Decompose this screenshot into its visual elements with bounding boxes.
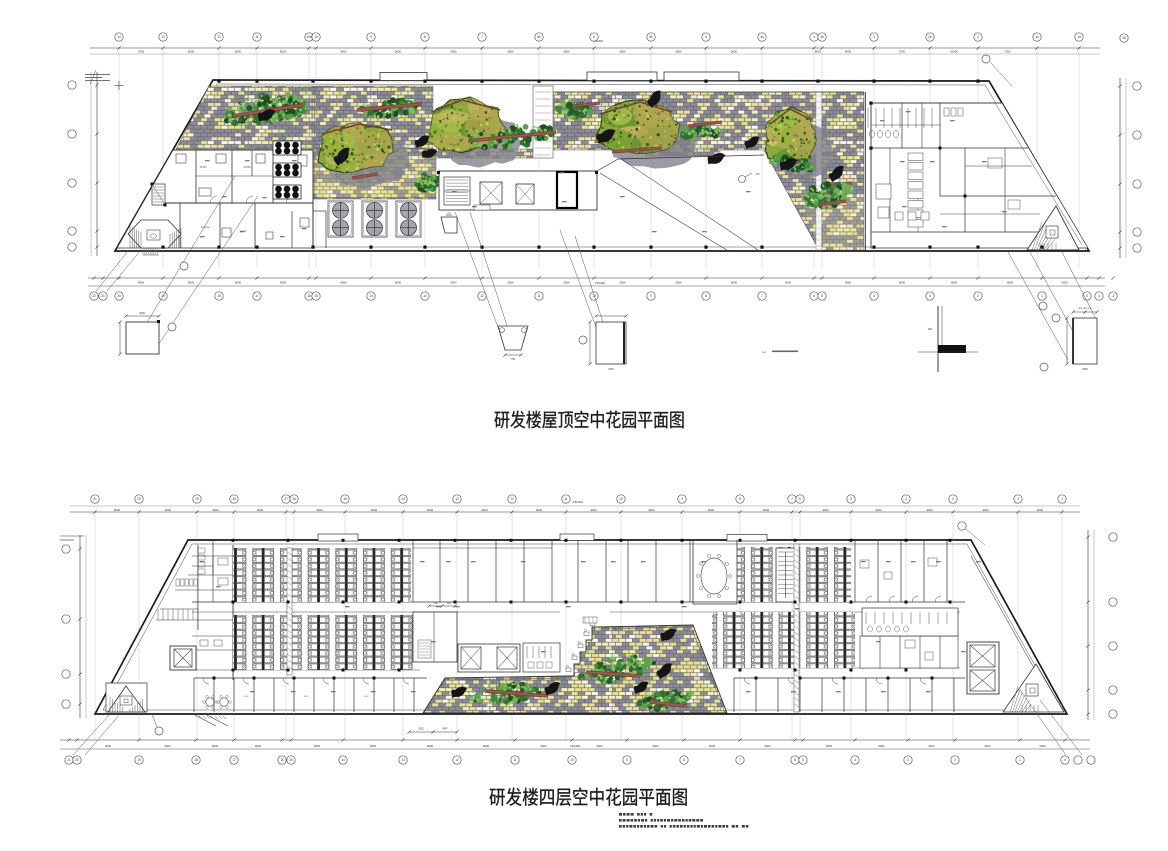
svg-text:18: 18	[232, 497, 236, 501]
svg-text:11: 11	[564, 497, 568, 501]
svg-text:9: 9	[370, 35, 372, 39]
svg-text:8: 8	[683, 758, 685, 762]
svg-text:3600: 3600	[244, 696, 250, 698]
svg-text:9000: 9000	[926, 508, 933, 512]
svg-text:9000: 9000	[563, 50, 570, 54]
svg-text:1b: 1b	[1035, 35, 1039, 39]
svg-text:9000: 9000	[138, 281, 145, 285]
svg-text:3000: 3000	[364, 696, 370, 698]
svg-text:9000: 9000	[590, 508, 597, 512]
svg-text:150400: 150400	[570, 744, 580, 748]
svg-text:9000: 9000	[928, 744, 935, 748]
svg-text:12: 12	[510, 497, 514, 501]
svg-text:9000: 9000	[450, 281, 457, 285]
svg-text:7: 7	[791, 497, 793, 501]
svg-text:19: 19	[195, 497, 199, 501]
svg-text:9000: 9000	[951, 281, 958, 285]
svg-text:7: 7	[481, 35, 483, 39]
svg-text:7: 7	[739, 758, 741, 762]
svg-text:A-a: A-a	[762, 350, 767, 354]
svg-text:9000: 9000	[826, 744, 833, 748]
svg-text:9000: 9000	[540, 744, 547, 748]
svg-text:16: 16	[292, 497, 296, 501]
svg-text:600: 600	[928, 328, 933, 331]
svg-text:9000: 9000	[481, 508, 488, 512]
svg-text:750: 750	[511, 358, 516, 361]
svg-text:9000: 9000	[235, 281, 242, 285]
svg-text:9000: 9000	[212, 508, 219, 512]
svg-text:13: 13	[455, 497, 459, 501]
svg-text:17: 17	[284, 497, 288, 501]
svg-text:9000: 9000	[1061, 281, 1068, 285]
svg-text:9: 9	[626, 758, 628, 762]
svg-text:9000: 9000	[708, 508, 715, 512]
svg-text:9000: 9000	[395, 281, 402, 285]
svg-text:3: 3	[952, 497, 954, 501]
svg-text:17: 17	[232, 758, 236, 762]
svg-text:9000: 9000	[878, 744, 885, 748]
svg-text:9000: 9000	[188, 281, 195, 285]
svg-text:8: 8	[705, 294, 707, 298]
svg-text:9000: 9000	[763, 508, 770, 512]
svg-text:1a: 1a	[1077, 35, 1081, 39]
svg-text:9000: 9000	[257, 508, 264, 512]
svg-text:18: 18	[1122, 36, 1126, 40]
svg-text:9000: 9000	[731, 281, 738, 285]
svg-text:9000: 9000	[652, 744, 659, 748]
svg-text:8: 8	[739, 497, 741, 501]
svg-text:9000: 9000	[371, 508, 378, 512]
svg-text:9000: 9000	[212, 744, 219, 748]
svg-text:565 1405 500: 565 1405 500	[1078, 308, 1092, 310]
svg-text:9000: 9000	[114, 508, 121, 512]
svg-text:3: 3	[907, 758, 909, 762]
svg-text:9000: 9000	[648, 508, 655, 512]
svg-text:3K369: 3K369	[200, 166, 208, 169]
svg-text:3947: 3947	[442, 728, 448, 731]
svg-text:9000: 9000	[483, 744, 490, 748]
svg-text:22: 22	[92, 294, 96, 298]
svg-text:9000: 9000	[314, 744, 321, 748]
svg-text:2: 2	[977, 35, 979, 39]
svg-text:9000: 9000	[165, 508, 172, 512]
svg-text:9000: 9000	[105, 744, 112, 748]
svg-text:-1: -1	[1098, 294, 1101, 298]
svg-text:6000: 6000	[235, 50, 242, 54]
svg-text:9000: 9000	[536, 508, 543, 512]
svg-text:21: 21	[93, 497, 97, 501]
svg-text:1: 1	[1061, 497, 1063, 501]
svg-text:3352: 3352	[434, 603, 440, 605]
svg-text:15: 15	[343, 497, 347, 501]
svg-text:9000: 9000	[731, 50, 738, 54]
svg-text:9000: 9000	[596, 744, 603, 748]
svg-text:3: 3	[929, 294, 931, 298]
svg-text:0: 0	[1086, 294, 1088, 298]
svg-text:20: 20	[137, 497, 141, 501]
svg-text:15: 15	[289, 758, 293, 762]
svg-text:13: 13	[161, 35, 165, 39]
svg-text:3352: 3352	[418, 728, 424, 731]
svg-text:150400: 150400	[573, 500, 583, 504]
svg-text:9000: 9000	[255, 744, 262, 748]
svg-text:10b: 10b	[306, 35, 312, 39]
svg-text:12: 12	[217, 35, 221, 39]
svg-text:10500: 10500	[950, 50, 958, 54]
svg-text:9000: 9000	[675, 281, 682, 285]
svg-text:3: 3	[873, 35, 875, 39]
svg-text:4b: 4b	[760, 35, 764, 39]
svg-text:4: 4	[873, 294, 875, 298]
svg-text:2600: 2600	[1082, 368, 1088, 371]
svg-text:11: 11	[537, 294, 541, 298]
svg-text:2AF12a: 2AF12a	[201, 226, 210, 229]
svg-text:21: 21	[67, 758, 71, 762]
svg-text:2: 2	[977, 294, 979, 298]
svg-text:0: 0	[1064, 758, 1066, 762]
svg-text:8620: 8620	[280, 50, 287, 54]
svg-text:9000: 9000	[982, 508, 989, 512]
svg-text:4: 4	[813, 35, 815, 39]
svg-text:5b: 5b	[649, 35, 653, 39]
svg-text:9000: 9000	[619, 50, 626, 54]
svg-text:7: 7	[761, 294, 763, 298]
svg-text:9000: 9000	[764, 744, 771, 748]
svg-text:20: 20	[117, 294, 121, 298]
svg-text:20: 20	[75, 758, 79, 762]
svg-text:9000: 9000	[785, 281, 792, 285]
svg-text:-2: -2	[1112, 294, 1115, 298]
svg-text:FD: FD	[447, 213, 450, 215]
svg-text:14: 14	[401, 497, 405, 501]
svg-text:14: 14	[117, 35, 121, 39]
svg-text:9000: 9000	[395, 50, 402, 54]
svg-text:13: 13	[423, 294, 427, 298]
svg-text:9000: 9000	[507, 50, 514, 54]
svg-text:5: 5	[821, 294, 823, 298]
svg-text:9000: 9000	[563, 281, 570, 285]
svg-text:9000: 9000	[1007, 281, 1014, 285]
svg-text:3600: 3600	[304, 696, 310, 698]
svg-text:8: 8	[424, 35, 426, 39]
svg-text:3K369: 3K369	[244, 166, 252, 169]
svg-text:12: 12	[455, 758, 459, 762]
svg-text:18: 18	[194, 758, 198, 762]
svg-text:4: 4	[854, 758, 856, 762]
svg-text:9000: 9000	[845, 50, 852, 54]
svg-text:10: 10	[314, 35, 318, 39]
svg-text:7200: 7200	[1004, 50, 1011, 54]
svg-text:6: 6	[593, 35, 595, 39]
svg-text:9: 9	[681, 497, 683, 501]
svg-text:4: 4	[905, 497, 907, 501]
svg-text:8620: 8620	[815, 50, 822, 54]
svg-text:18: 18	[217, 294, 221, 298]
svg-text:5: 5	[850, 497, 852, 501]
svg-text:5: 5	[802, 758, 804, 762]
svg-text:9000: 9000	[709, 744, 716, 748]
svg-text:9000: 9000	[899, 281, 906, 285]
svg-text:17: 17	[255, 294, 259, 298]
svg-text:9000: 9000	[984, 744, 991, 748]
svg-text:16: 16	[307, 294, 311, 298]
svg-text:9000: 9000	[845, 281, 852, 285]
svg-text:7500: 7500	[899, 50, 906, 54]
svg-text:9000: 9000	[619, 281, 626, 285]
svg-text:150400: 150400	[595, 281, 605, 285]
svg-text:6: 6	[799, 497, 801, 501]
svg-text:15: 15	[314, 294, 318, 298]
svg-text:19: 19	[137, 758, 141, 762]
svg-text:2600: 2600	[608, 368, 614, 371]
svg-text:7200: 7200	[138, 50, 145, 54]
svg-text:9000: 9000	[875, 508, 882, 512]
svg-text:11: 11	[513, 758, 517, 762]
svg-text:13: 13	[401, 758, 405, 762]
svg-text:16: 16	[280, 758, 284, 762]
svg-text:3b: 3b	[820, 35, 824, 39]
svg-text:6: 6	[813, 294, 815, 298]
svg-text:9000: 9000	[450, 50, 457, 54]
svg-text:9000: 9000	[1039, 744, 1046, 748]
svg-text:9000: 9000	[188, 50, 195, 54]
svg-text:14: 14	[369, 294, 373, 298]
svg-text:3947: 3947	[447, 603, 453, 605]
svg-text:12: 12	[480, 294, 484, 298]
svg-text:1: 1	[1041, 294, 1043, 298]
svg-text:6b: 6b	[537, 35, 541, 39]
svg-text:10: 10	[619, 497, 623, 501]
svg-text:1: 1	[1019, 758, 1021, 762]
svg-text:11: 11	[255, 35, 259, 39]
svg-text:9000: 9000	[280, 281, 287, 285]
svg-text:2b: 2b	[928, 35, 932, 39]
svg-text:9000: 9000	[675, 50, 682, 54]
svg-text:MH: MH	[756, 173, 760, 176]
svg-text:9000: 9000	[427, 744, 434, 748]
svg-text:21: 21	[101, 294, 105, 298]
svg-text:9000: 9000	[1037, 508, 1044, 512]
svg-text:10: 10	[570, 758, 574, 762]
svg-text:14: 14	[341, 758, 345, 762]
svg-text:9000: 9000	[164, 744, 171, 748]
svg-text:9000: 9000	[507, 281, 514, 285]
svg-text:9: 9	[650, 294, 652, 298]
svg-text:9000: 9000	[427, 508, 434, 512]
svg-text:2: 2	[954, 758, 956, 762]
svg-text:9000: 9000	[340, 281, 347, 285]
svg-text:9000: 9000	[370, 744, 377, 748]
svg-text:2: 2	[1017, 497, 1019, 501]
svg-text:6: 6	[794, 758, 796, 762]
svg-text:4000: 4000	[139, 311, 145, 315]
svg-text:8600: 8600	[340, 50, 347, 54]
svg-text:5: 5	[705, 35, 707, 39]
svg-text:9000: 9000	[316, 508, 323, 512]
svg-text:9000: 9000	[822, 508, 829, 512]
